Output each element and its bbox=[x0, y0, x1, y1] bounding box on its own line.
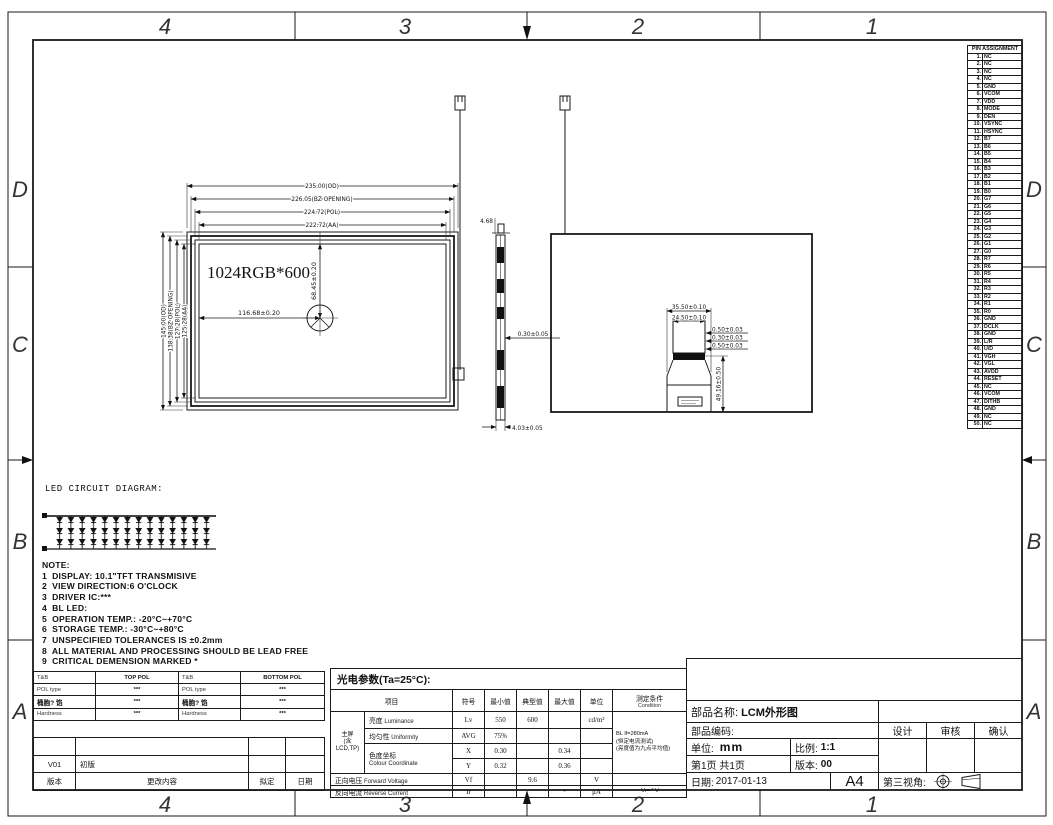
pin-row: 38.GND bbox=[968, 331, 1023, 339]
pin-row: 36.GND bbox=[968, 316, 1023, 324]
zone-top-1: 1 bbox=[866, 14, 878, 39]
connector-label-box bbox=[678, 397, 702, 406]
review-signature-cell bbox=[926, 738, 974, 772]
zone-bottom-4: 4 bbox=[159, 792, 171, 817]
pin-row: 21.G6 bbox=[968, 203, 1023, 211]
design-header: 设计 bbox=[878, 722, 926, 738]
dim-pol-width: 224.72(POL) bbox=[304, 210, 340, 216]
led-diagram-title: LED CIRCUIT DIAGRAM: bbox=[45, 484, 163, 494]
pin-assignment-table: PIN ASSIGNMENT 1.NC2.NC3.NC4.NC5.GND6.VC… bbox=[967, 45, 1023, 429]
zone-left-a: A bbox=[11, 699, 28, 724]
pin-row: 6.VCOM bbox=[968, 91, 1023, 99]
wire-connector-tip-back bbox=[560, 96, 570, 110]
pin-row: 44.RESET bbox=[968, 376, 1023, 384]
projection-cell: 第三视角: bbox=[878, 772, 1022, 790]
pin-row: 35.R0 bbox=[968, 308, 1023, 316]
date-cell: 日期:2017-01-13 bbox=[686, 772, 830, 790]
side-view: 4.68 0.30±0.05 4.03±0.05 bbox=[480, 218, 560, 432]
pin-row: 7.VDD bbox=[968, 98, 1023, 106]
zone-top-4: 4 bbox=[159, 14, 171, 39]
note-line: 5 OPERATION TEMP.: -20°C~+70°C bbox=[42, 614, 308, 625]
pin-row: 4.NC bbox=[968, 76, 1023, 84]
revision-table: V01初版 版本更改内容拟定日期 bbox=[33, 737, 325, 791]
pin-row: 32.R3 bbox=[968, 286, 1023, 294]
fpc-connector bbox=[667, 318, 711, 412]
pin-row: 40.U/D bbox=[968, 346, 1023, 354]
pin-row: 12.B7 bbox=[968, 136, 1023, 144]
pin-row: 48.GND bbox=[968, 406, 1023, 414]
unit-cell: 单位:mm bbox=[686, 738, 790, 755]
sign-blank bbox=[878, 700, 1022, 722]
pin-row: 16.B3 bbox=[968, 166, 1023, 174]
wire-connector-tip bbox=[455, 96, 465, 110]
dim-center-x: 116.68±0.20 bbox=[238, 309, 280, 317]
note-line: 8 ALL MATERIAL AND PROCESSING SHOULD BE … bbox=[42, 646, 308, 657]
pin-row: 13.B6 bbox=[968, 143, 1023, 151]
design-signature-cell bbox=[878, 738, 926, 772]
version-cell: 版本:00 bbox=[790, 755, 878, 772]
pin-row: 11.HSYNC bbox=[968, 128, 1023, 136]
pin-row: 14.B5 bbox=[968, 151, 1023, 159]
pin-row: 45.NC bbox=[968, 383, 1023, 391]
pin-row: 17.B2 bbox=[968, 173, 1023, 181]
zone-right-d: D bbox=[1026, 177, 1042, 202]
pin-row: 34.R1 bbox=[968, 301, 1023, 309]
pin-row: 23.G4 bbox=[968, 218, 1023, 226]
pin-row: 46.VCOM bbox=[968, 391, 1023, 399]
zone-right-b: B bbox=[1027, 529, 1042, 554]
drawing-sheet: 4 3 2 1 4 3 2 1 D C B A D C B A bbox=[0, 0, 1053, 825]
note-line: 1 DISPLAY: 10.1"TFT TRANSMISIVE bbox=[42, 571, 308, 582]
resolution-label: 1024RGB*600 bbox=[207, 263, 310, 282]
group-main-screen: 主屏(含LCD,TP) bbox=[331, 712, 365, 774]
pin-row: 22.G5 bbox=[968, 211, 1023, 219]
part-name: LCM外形图 bbox=[741, 704, 798, 720]
title-block: 部品名称:LCM外形图 部品编码: 单位:mm 比例:1:1 第1页 共1页 版… bbox=[686, 658, 1022, 790]
dim-pol-height: 127.28(POL) bbox=[176, 303, 182, 339]
dim-side-mid: 0.30±0.05 bbox=[518, 332, 549, 338]
pin-row: 15.B4 bbox=[968, 158, 1023, 166]
pin-row: 43.AVDD bbox=[968, 368, 1023, 376]
zone-left-c: C bbox=[12, 332, 28, 357]
pin-row: 8.MODE bbox=[968, 106, 1023, 114]
optical-parameters-table: 光电参数(Ta=25°C): 项目 符号 最小值 典型值 最大值 单位 测定条件… bbox=[330, 668, 687, 798]
pin-row: 24.G3 bbox=[968, 226, 1023, 234]
third-angle-projection-icon bbox=[932, 773, 996, 790]
dim-tape-2: 0.30±0.03 bbox=[712, 336, 743, 342]
zone-top-3: 3 bbox=[399, 14, 412, 39]
note-line: 6 STORAGE TEMP.: -30°C~+80°C bbox=[42, 624, 308, 635]
zone-right-a: A bbox=[1025, 699, 1042, 724]
dim-aa-width: 222.72(AA) bbox=[306, 223, 339, 229]
zone-left-b: B bbox=[13, 529, 28, 554]
zone-left-d: D bbox=[12, 177, 28, 202]
back-view: 35.50±0.10 24.50±0.10 0.50±0.03 0.30±0.0… bbox=[551, 96, 812, 412]
test-condition: BL If=280mA(恒定电流测试)(亮度值为九点平均值) bbox=[613, 712, 687, 774]
front-view: 235.00(OD) 226.05(BZ OPENING) 224.72(POL… bbox=[160, 96, 465, 410]
note-line: 4 BL LED: bbox=[42, 603, 308, 614]
part-code-row: 部品编码: bbox=[686, 722, 878, 738]
dim-bz-height: 138.38(BZ OPENING) bbox=[169, 290, 175, 351]
note-line: 9 CRITICAL DEMENSION MARKED * bbox=[42, 656, 308, 667]
pin-row: 42.VGL bbox=[968, 361, 1023, 369]
note-line: 2 VIEW DIRECTION:6 O'CLOCK bbox=[42, 581, 308, 592]
dim-aa-height: 125.28(AA) bbox=[183, 305, 189, 338]
pin-row: 39.L/R bbox=[968, 338, 1023, 346]
pin-row: 49.NC bbox=[968, 413, 1023, 421]
zone-bottom-1: 1 bbox=[866, 792, 878, 817]
pin-row: 30.R5 bbox=[968, 271, 1023, 279]
paper-size-cell: A4 bbox=[830, 772, 878, 790]
pin-row: 20.G7 bbox=[968, 196, 1023, 204]
notes-title: NOTE: bbox=[42, 560, 308, 571]
dim-side-bottom: 4.03±0.05 bbox=[512, 426, 543, 432]
dim-side-top: 4.68 bbox=[480, 219, 493, 225]
pin-row: 47.DITHB bbox=[968, 398, 1023, 406]
pin-row: 29.R6 bbox=[968, 263, 1023, 271]
led-array bbox=[54, 516, 212, 549]
confirm-header: 确认 bbox=[974, 722, 1022, 738]
part-name-row: 部品名称:LCM外形图 bbox=[686, 700, 878, 722]
dim-od-width: 235.00(OD) bbox=[305, 184, 339, 190]
zone-top-2: 2 bbox=[631, 14, 644, 39]
dim-conn-height: 49.16±0.50 bbox=[717, 367, 723, 402]
pin-row: 37.DCLK bbox=[968, 323, 1023, 331]
pin-row: 9.DEN bbox=[968, 113, 1023, 121]
note-line: 7 UNSPECIFIED TOLERANCES IS ±0.2mm bbox=[42, 635, 308, 646]
polarizer-table: T&BTOP POLT&BBOTTOM POL POL type***POL t… bbox=[33, 671, 325, 721]
dim-od-height: 145.00(OD) bbox=[162, 304, 168, 338]
pin-row: 10.VSYNC bbox=[968, 121, 1023, 129]
scale-cell: 比例:1:1 bbox=[790, 738, 878, 755]
pin-row: 25.G2 bbox=[968, 233, 1023, 241]
review-header: 审核 bbox=[926, 722, 974, 738]
notes-block: NOTE: 1 DISPLAY: 10.1"TFT TRANSMISIVE2 V… bbox=[42, 560, 308, 667]
confirm-signature-cell bbox=[974, 738, 1022, 772]
front-dimensions: 235.00(OD) 226.05(BZ OPENING) 224.72(POL… bbox=[160, 183, 458, 410]
pin-row: 28.R7 bbox=[968, 256, 1023, 264]
dim-bz-width: 226.05(BZ OPENING) bbox=[291, 197, 352, 203]
pin-row: 31.R4 bbox=[968, 278, 1023, 286]
pin-row: 27.G0 bbox=[968, 248, 1023, 256]
dim-conn-w2: 24.50±0.10 bbox=[672, 316, 707, 322]
pin-row: 2.NC bbox=[968, 61, 1023, 69]
dim-conn-w1: 35.50±0.10 bbox=[672, 305, 707, 311]
pin-row: 33.R2 bbox=[968, 293, 1023, 301]
pin-row: 5.GND bbox=[968, 83, 1023, 91]
zone-right-c: C bbox=[1026, 332, 1042, 357]
pin-row: 41.VGH bbox=[968, 353, 1023, 361]
pin-row: 1.NC bbox=[968, 53, 1023, 61]
led-circuit-diagram: LED CIRCUIT DIAGRAM: bbox=[42, 484, 216, 551]
note-line: 3 DRIVER IC:*** bbox=[42, 592, 308, 603]
pin-row: 50.NC bbox=[968, 421, 1023, 429]
dim-center-y: 68.45±0.20 bbox=[310, 262, 318, 300]
title-block-blank bbox=[686, 658, 1022, 700]
page-cell: 第1页 共1页 bbox=[686, 755, 790, 772]
pin-table-title: PIN ASSIGNMENT bbox=[968, 46, 1023, 54]
dim-tape-1: 0.50±0.03 bbox=[712, 328, 743, 334]
pin-row: 26.G1 bbox=[968, 241, 1023, 249]
pin-row: 18.B1 bbox=[968, 181, 1023, 189]
optical-table-title: 光电参数(Ta=25°C): bbox=[331, 669, 687, 690]
pin-row: 3.NC bbox=[968, 68, 1023, 76]
pin-row: 19.B0 bbox=[968, 188, 1023, 196]
dim-tape-3: 0.50±0.03 bbox=[712, 344, 743, 350]
